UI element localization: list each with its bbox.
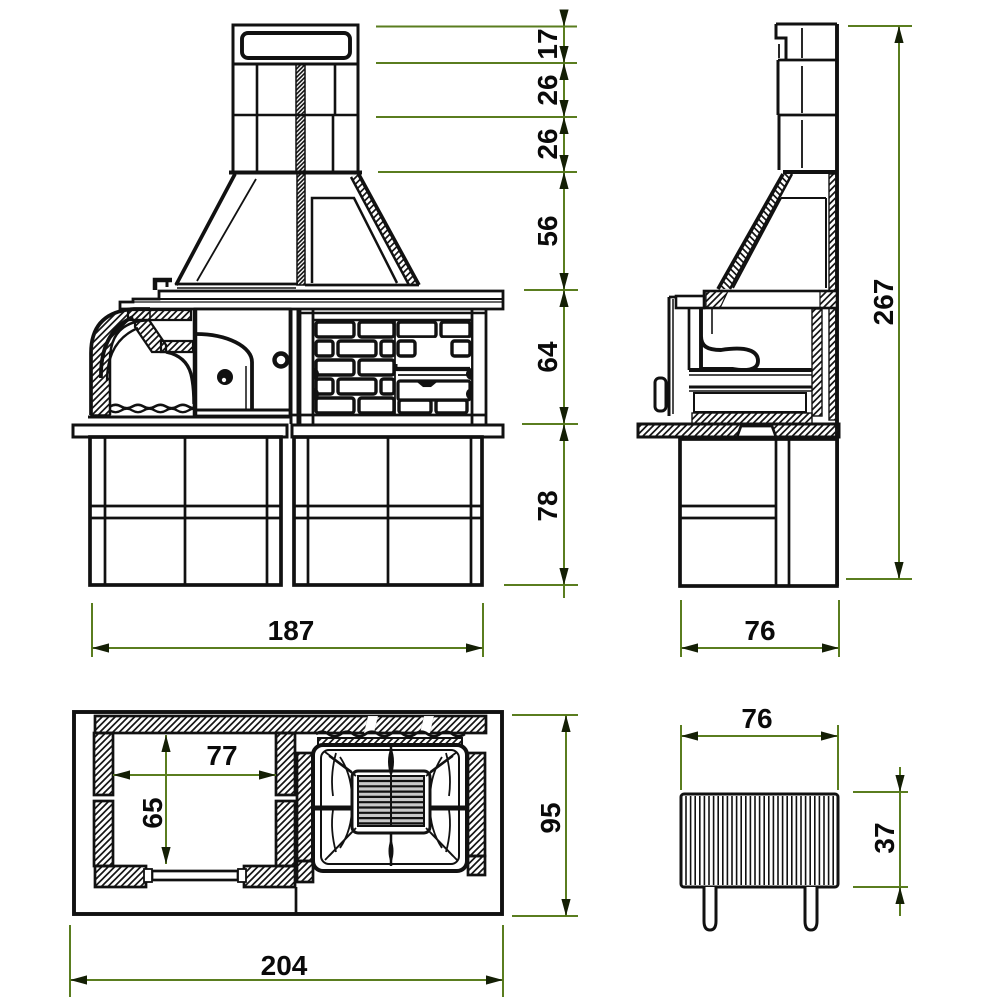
svg-text:64: 64	[532, 341, 563, 373]
svg-text:95: 95	[535, 802, 566, 833]
svg-text:56: 56	[532, 215, 563, 246]
svg-text:37: 37	[869, 822, 900, 853]
svg-text:76: 76	[741, 703, 772, 734]
svg-text:267: 267	[868, 279, 899, 326]
svg-text:26: 26	[532, 128, 563, 159]
svg-text:204: 204	[261, 950, 308, 981]
svg-text:76: 76	[744, 615, 775, 646]
svg-text:77: 77	[206, 740, 237, 771]
svg-text:26: 26	[532, 74, 563, 105]
svg-text:17: 17	[532, 28, 563, 59]
svg-text:187: 187	[268, 615, 315, 646]
svg-text:78: 78	[532, 490, 563, 521]
svg-text:65: 65	[137, 797, 168, 828]
